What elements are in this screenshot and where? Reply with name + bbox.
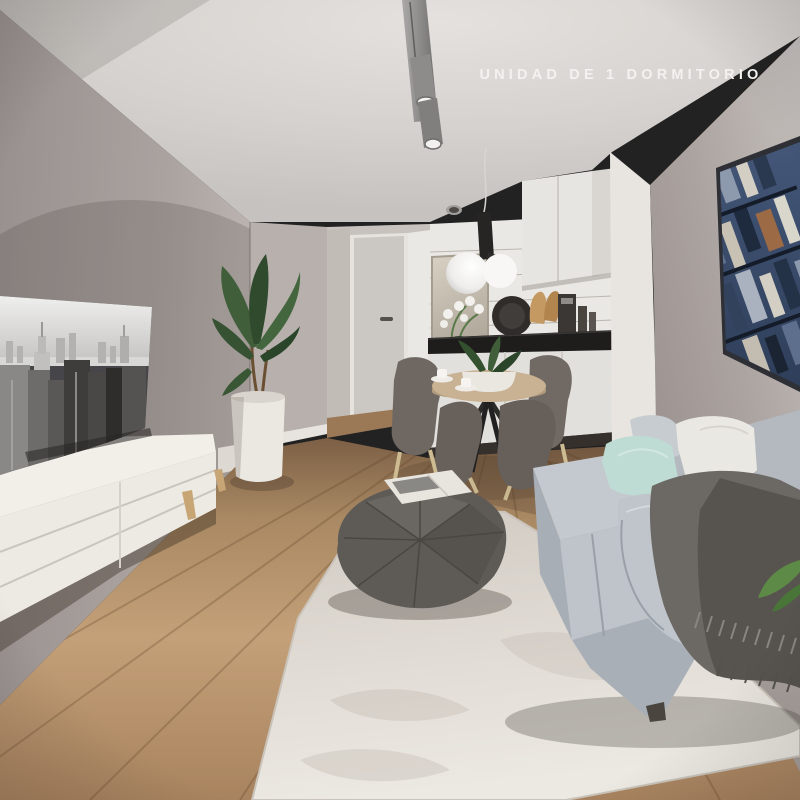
apartment-render: UNIDAD DE 1 DORMITORIO <box>0 0 800 800</box>
vignette <box>0 0 800 800</box>
render-canvas: UNIDAD DE 1 DORMITORIO <box>0 0 800 800</box>
page-title: UNIDAD DE 1 DORMITORIO <box>479 67 762 83</box>
